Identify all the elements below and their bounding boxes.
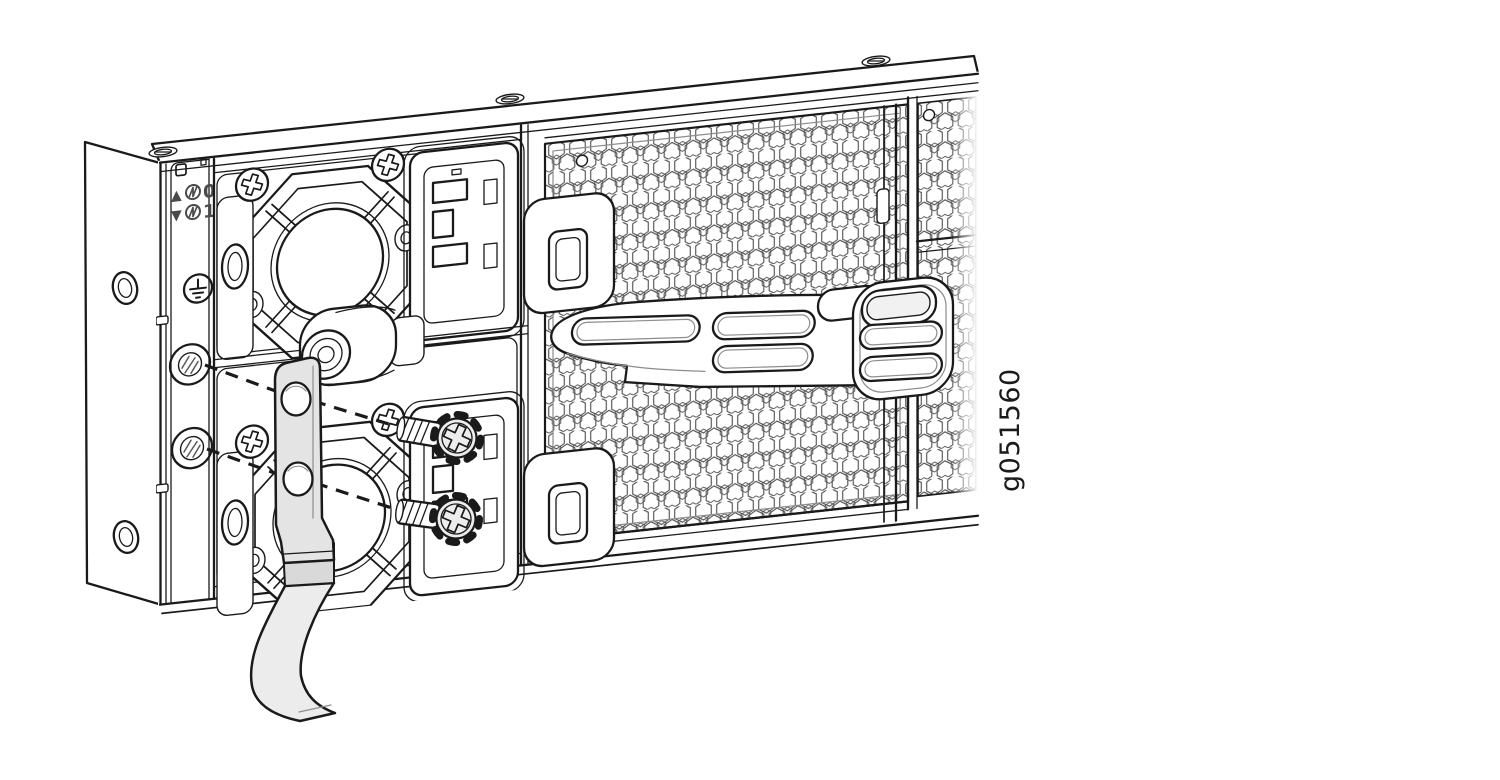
lug-hole-upper: [282, 383, 311, 416]
rear-panel: ▲ 0 ▼ 1: [156, 72, 980, 631]
cord-retainer-latch-0: [524, 191, 614, 315]
grounding-cable: [251, 583, 335, 721]
cord-retainer-latch-1: [524, 446, 614, 568]
inlet-blade: [433, 210, 453, 238]
vent-screw-hole: [924, 109, 935, 121]
ac-power-inlet-0: [404, 135, 524, 348]
edge-tab: [156, 316, 168, 325]
edge-tab: [156, 484, 168, 493]
top-panel-screw-icon: [496, 93, 525, 106]
technical-illustration: ▲ 0 ▼ 1: [0, 0, 1500, 780]
figure-canvas: ▲ 0 ▼ 1: [0, 0, 1500, 780]
chassis-side-face: [85, 142, 162, 605]
inlet-blade: [433, 243, 467, 267]
vent-screw-hole: [577, 155, 588, 167]
figure-id-label: g051560: [995, 368, 1026, 492]
rail-notch: [877, 188, 889, 223]
psu0-arrow: ▲: [171, 187, 182, 204]
lug-hole-lower: [284, 463, 313, 496]
psu1-arrow: ▼: [171, 207, 182, 224]
inlet-blade: [433, 179, 467, 203]
inlet-blade: [433, 465, 453, 493]
